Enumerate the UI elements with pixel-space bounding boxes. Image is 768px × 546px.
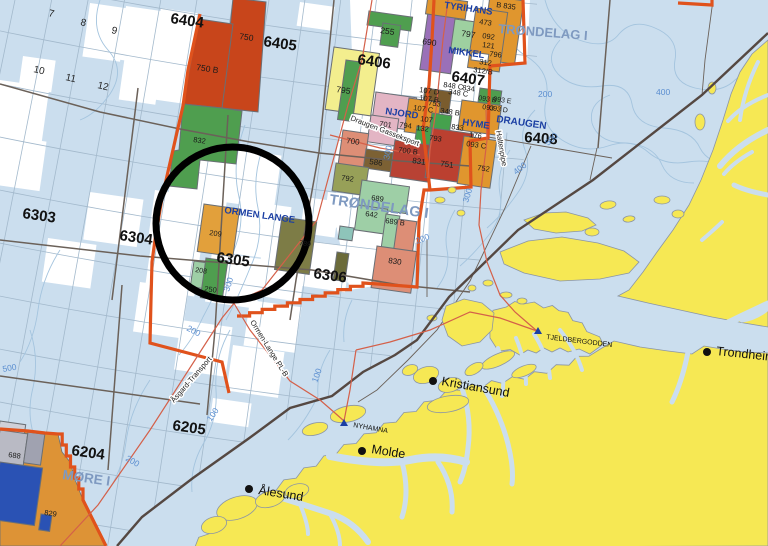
svg-text:832: 832 — [193, 135, 207, 146]
svg-text:642: 642 — [365, 209, 379, 220]
svg-text:689: 689 — [371, 193, 385, 204]
svg-text:792: 792 — [341, 173, 355, 184]
svg-text:750: 750 — [239, 31, 255, 43]
svg-text:200: 200 — [538, 89, 552, 99]
svg-text:400: 400 — [656, 87, 670, 97]
svg-text:132: 132 — [416, 123, 430, 134]
svg-text:209: 209 — [209, 228, 223, 239]
svg-text:688: 688 — [8, 450, 22, 461]
svg-text:795: 795 — [336, 84, 352, 96]
svg-text:255: 255 — [380, 25, 396, 37]
svg-text:690: 690 — [422, 36, 438, 48]
svg-text:829: 829 — [44, 508, 58, 519]
svg-text:701: 701 — [379, 119, 393, 130]
svg-text:794: 794 — [399, 120, 413, 131]
svg-text:473: 473 — [479, 17, 493, 28]
svg-text:752: 752 — [477, 163, 491, 174]
svg-text:833: 833 — [451, 122, 465, 133]
svg-text:797: 797 — [461, 28, 477, 40]
svg-text:250: 250 — [204, 284, 218, 295]
svg-text:793: 793 — [429, 133, 443, 144]
svg-text:834: 834 — [462, 83, 476, 94]
